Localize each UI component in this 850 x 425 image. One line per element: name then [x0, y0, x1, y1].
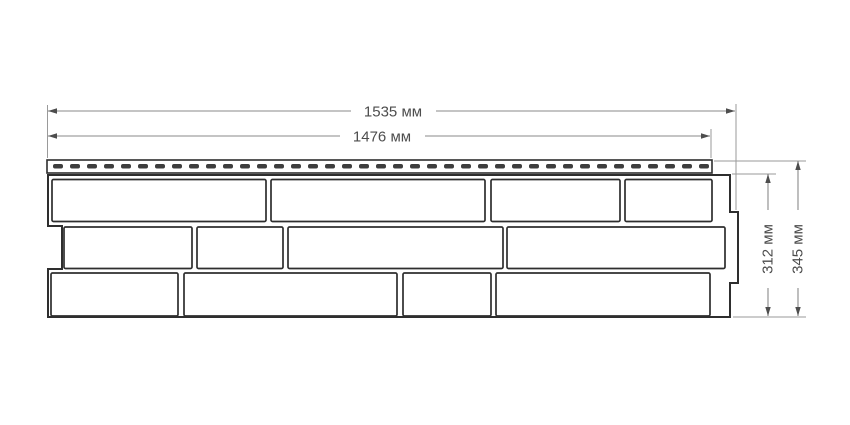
nail-slot: [546, 164, 556, 169]
arrow-right-icon: [701, 133, 710, 138]
nail-slot: [563, 164, 573, 169]
nail-slot: [665, 164, 675, 169]
arrow-up-icon: [765, 174, 770, 183]
nail-slot: [53, 164, 63, 169]
nail-slot: [410, 164, 420, 169]
nail-slot: [223, 164, 233, 169]
nail-slot: [580, 164, 590, 169]
panel-object: [47, 160, 738, 317]
nail-slot: [376, 164, 386, 169]
nail-slot: [274, 164, 284, 169]
arrow-down-icon: [795, 307, 800, 316]
nail-slot: [427, 164, 437, 169]
nail-slot: [614, 164, 624, 169]
brick: [625, 180, 712, 222]
brick: [271, 180, 485, 222]
nail-slot: [155, 164, 165, 169]
nail-slot: [172, 164, 182, 169]
brick: [496, 273, 710, 316]
nail-slot: [393, 164, 403, 169]
nail-slot: [291, 164, 301, 169]
nail-slot: [87, 164, 97, 169]
brick: [52, 180, 266, 222]
nail-slot: [682, 164, 692, 169]
nail-slot: [189, 164, 199, 169]
nail-slot: [631, 164, 641, 169]
brick: [507, 227, 725, 269]
nail-slot: [342, 164, 352, 169]
arrow-left-icon: [48, 108, 57, 113]
brick: [64, 227, 192, 269]
nail-slot: [461, 164, 471, 169]
nail-slot: [206, 164, 216, 169]
arrow-up-icon: [795, 161, 800, 170]
arrow-right-icon: [726, 108, 735, 113]
nail-slot: [104, 164, 114, 169]
nail-slot: [308, 164, 318, 169]
nail-slot: [478, 164, 488, 169]
nail-slot: [444, 164, 454, 169]
dimension-label-body-height: 312 мм: [760, 224, 777, 274]
nail-slot: [70, 164, 80, 169]
dimension-width-nail-strip: 1476 мм: [48, 128, 711, 158]
nail-slot: [257, 164, 267, 169]
brick: [184, 273, 397, 316]
nail-slot: [512, 164, 522, 169]
nail-slot: [495, 164, 505, 169]
brick: [288, 227, 503, 269]
dimension-label-total-height: 345 мм: [790, 224, 807, 274]
nail-slot: [359, 164, 369, 169]
nail-slot: [325, 164, 335, 169]
brick: [403, 273, 491, 316]
facade-panel-dimension-drawing: 1535 мм 1476 мм 312 мм: [0, 0, 850, 425]
arrow-down-icon: [765, 307, 770, 316]
nail-slot: [597, 164, 607, 169]
brick: [491, 180, 620, 222]
dimension-label-total-width: 1535 мм: [364, 104, 422, 121]
nail-strip: [47, 160, 712, 173]
nail-slot: [699, 164, 709, 169]
brick: [197, 227, 283, 269]
technical-drawing-page: 1535 мм 1476 мм 312 мм: [0, 0, 850, 425]
nail-slot: [138, 164, 148, 169]
arrow-left-icon: [48, 133, 57, 138]
brick: [51, 273, 178, 316]
nail-slot: [529, 164, 539, 169]
dimension-label-strip-width: 1476 мм: [353, 129, 411, 146]
nail-slot: [121, 164, 131, 169]
nail-slot: [648, 164, 658, 169]
nail-slot: [240, 164, 250, 169]
